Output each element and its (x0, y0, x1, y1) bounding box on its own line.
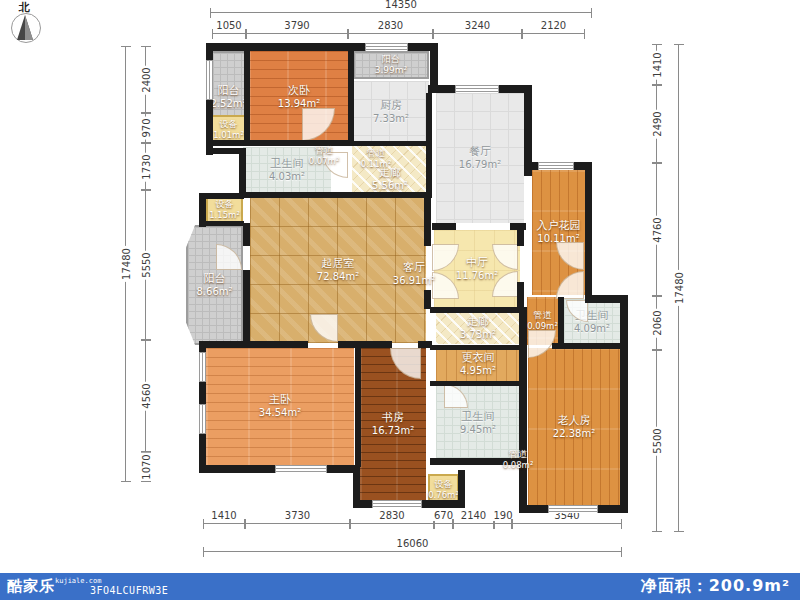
wall (355, 345, 361, 467)
wall (244, 48, 250, 144)
room-corridor-1: 走廊5.56m² (352, 145, 428, 195)
dim-top-seg: 3790 (246, 33, 348, 34)
room-living: 起居室72.84m² (250, 198, 426, 343)
wall (243, 223, 250, 246)
wall (585, 165, 592, 302)
wall (426, 93, 432, 198)
wall (430, 307, 522, 313)
kujiale-site-label: kujiale.com (55, 577, 101, 585)
dim-right-seg: 2060 (656, 296, 657, 350)
compass-arrow-shade-icon (25, 15, 33, 40)
window (548, 505, 598, 513)
wall (206, 140, 354, 146)
dim-bottom-total: 16060 (203, 551, 622, 552)
dim-bottom-seg: 2140 (453, 523, 494, 524)
wall (418, 341, 432, 348)
window (275, 465, 327, 473)
room-corridor-2: 走廊3.73m² (436, 312, 520, 344)
wall (517, 282, 524, 309)
window (538, 162, 574, 170)
dim-top-seg: 2830 (348, 33, 433, 34)
wall (199, 193, 244, 199)
room-equipment-2: 设备1.15m² (206, 196, 243, 223)
window (206, 60, 213, 100)
wall (348, 141, 432, 146)
room-dressing: 更衣间4.95m² (436, 348, 520, 381)
dim-right-seg: 2490 (656, 85, 657, 163)
floor-plan-canvas: 北 14350 1050 3790 2830 3240 2120 17480 2… (0, 0, 800, 600)
dim-right-seg: 4760 (656, 163, 657, 296)
dim-bottom-seg: 670 (434, 523, 453, 524)
window (372, 500, 422, 508)
wall (430, 381, 522, 386)
dim-bottom-seg: 190 (494, 523, 512, 524)
wall (430, 458, 526, 465)
room-balcony-3: 阳台3.99m² (353, 51, 429, 79)
wall (199, 221, 244, 226)
window (455, 85, 499, 93)
dim-left-seg: 5550 (145, 190, 146, 340)
wall (239, 150, 246, 196)
wall (202, 341, 308, 348)
dim-top-seg: 3240 (433, 33, 522, 34)
window (199, 352, 206, 382)
compass: 北 (6, 0, 50, 48)
net-area: 净面积：200.9m² (641, 576, 790, 597)
room-kitchen: 厨房7.33m² (353, 81, 429, 143)
wall (243, 270, 250, 345)
window (199, 404, 206, 434)
room-bath-1: 卫生间4.03m² (243, 147, 331, 193)
wall (430, 345, 522, 350)
dim-left-seg: 2400 (145, 46, 146, 113)
footer-bar: 酷家乐 kujiale.com 3FO4LCUFRW3E 净面积：200.9m² (0, 573, 800, 600)
wall (424, 198, 431, 246)
dim-right-seg: 5500 (656, 350, 657, 532)
dim-left-seg: 970 (145, 113, 146, 143)
dim-bottom-seg: 3540 (512, 523, 622, 524)
dim-left-seg: 1070 (145, 452, 146, 482)
plan-code: 3FO4LCUFRW3E (90, 585, 168, 596)
dim-bottom-seg: 2830 (350, 523, 434, 524)
dim-top-total: 14350 (210, 12, 592, 13)
room-elder: 老人房22.38m² (528, 348, 620, 506)
wall (510, 223, 526, 230)
wall (558, 297, 564, 347)
wall (348, 48, 354, 143)
wall (338, 341, 392, 348)
dim-top-seg: 1050 (212, 33, 246, 34)
dim-left-seg: 1730 (145, 143, 146, 190)
window (365, 43, 408, 51)
dim-right-total: 17480 (678, 44, 679, 532)
kujiale-logo: 酷家乐 (7, 577, 55, 596)
dim-bottom-seg: 3730 (245, 523, 350, 524)
room-bedroom-2: 次卧13.94m² (249, 51, 349, 143)
room-dining: 餐厅16.79m² (436, 93, 524, 223)
dim-left-seg: 4560 (145, 340, 146, 452)
wall (458, 470, 465, 508)
room-balcony-1: 阳台8.66m² (186, 225, 243, 345)
dim-right-seg: 1410 (656, 44, 657, 85)
room-master: 主卧34.54m² (206, 348, 354, 465)
wall (552, 343, 622, 349)
wall (519, 307, 527, 513)
dim-bottom-seg: 1410 (203, 523, 245, 524)
wall (432, 223, 456, 230)
dim-left-total: 17480 (125, 46, 126, 482)
dim-top-seg: 2120 (522, 33, 585, 34)
wall (517, 230, 524, 246)
wall (620, 295, 628, 513)
wall (240, 192, 432, 198)
